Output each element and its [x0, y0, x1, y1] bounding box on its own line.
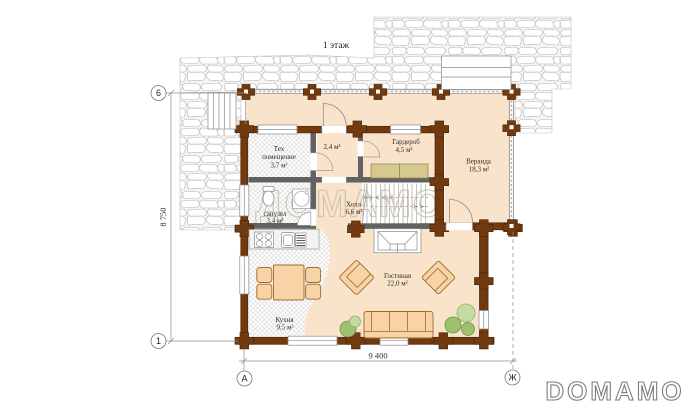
svg-text:3,7 м²: 3,7 м² — [270, 162, 287, 170]
svg-text:Веранда: Веранда — [466, 158, 492, 166]
svg-text:9 400: 9 400 — [368, 351, 387, 361]
svg-text:4,5 м²: 4,5 м² — [395, 146, 412, 154]
svg-text:1: 1 — [156, 336, 161, 346]
svg-text:1 этаж: 1 этаж — [323, 41, 350, 51]
svg-text:9,5 м²: 9,5 м² — [276, 324, 293, 332]
svg-text:Тех: Тех — [274, 145, 285, 153]
svg-text:18,3 м²: 18,3 м² — [469, 166, 490, 174]
svg-text:DOMAMO: DOMAMO — [545, 376, 684, 405]
svg-text:Гардероб: Гардероб — [392, 138, 420, 146]
svg-text:6: 6 — [156, 88, 161, 98]
svg-text:22,0 м²: 22,0 м² — [387, 280, 408, 288]
svg-text:6,6 м²: 6,6 м² — [345, 208, 362, 216]
svg-text:Ж: Ж — [508, 373, 517, 383]
svg-text:8 750: 8 750 — [158, 207, 168, 226]
svg-text:2,4 м²: 2,4 м² — [323, 143, 340, 151]
svg-text:А: А — [241, 374, 247, 384]
svg-text:3,4 м²: 3,4 м² — [266, 217, 283, 225]
svg-text:помещение: помещение — [262, 153, 296, 161]
